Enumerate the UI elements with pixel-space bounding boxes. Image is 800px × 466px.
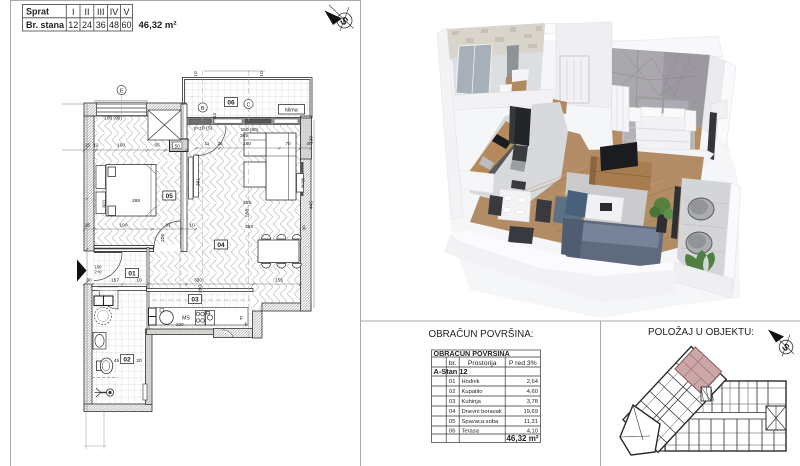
svg-text:155: 155 — [275, 278, 283, 284]
svg-text:40: 40 — [244, 322, 248, 326]
svg-text:II: II — [84, 7, 89, 17]
svg-text:2+0: 2+0 — [95, 270, 103, 275]
svg-text:I: I — [72, 7, 75, 17]
svg-text:E: E — [120, 88, 124, 94]
svg-text:p=±0 (S): p=±0 (S) — [194, 126, 213, 132]
svg-text:06: 06 — [227, 100, 235, 107]
svg-text:25: 25 — [85, 143, 91, 149]
svg-text:Dnevni boravak: Dnevni boravak — [462, 409, 502, 415]
svg-text:2,64: 2,64 — [527, 379, 539, 385]
svg-text:19,69: 19,69 — [523, 409, 538, 415]
svg-text:IV: IV — [110, 7, 119, 17]
svg-text:klima: klima — [285, 108, 298, 114]
svg-text:4,60: 4,60 — [527, 389, 538, 395]
svg-text:01: 01 — [128, 271, 136, 278]
svg-text:45: 45 — [114, 358, 120, 364]
svg-text:25: 25 — [217, 141, 223, 147]
svg-text:355: 355 — [245, 224, 253, 230]
svg-text:10: 10 — [136, 278, 142, 284]
svg-text:C: C — [247, 102, 251, 108]
svg-text:330: 330 — [194, 278, 202, 284]
svg-text:br.: br. — [449, 360, 457, 367]
svg-text:11: 11 — [205, 141, 210, 147]
svg-text:30: 30 — [86, 278, 92, 284]
svg-text:110: 110 — [212, 112, 217, 119]
svg-text:04: 04 — [217, 242, 225, 249]
svg-text:3,78: 3,78 — [527, 399, 538, 405]
svg-text:381: 381 — [196, 178, 202, 186]
svg-text:10: 10 — [193, 71, 199, 77]
svg-text:46,32 m²: 46,32 m² — [506, 434, 538, 443]
svg-text:Br. stana: Br. stana — [26, 20, 65, 30]
svg-text:12: 12 — [93, 143, 99, 149]
svg-text:03: 03 — [449, 399, 455, 405]
svg-text:OBRACUN POVRSINA: OBRACUN POVRSINA — [434, 349, 510, 358]
svg-text:MS: MS — [182, 316, 190, 322]
svg-text:24: 24 — [82, 20, 92, 30]
svg-text:Sprat: Sprat — [26, 7, 49, 17]
svg-text:70: 70 — [285, 141, 291, 147]
svg-text:46,32 m²: 46,32 m² — [139, 20, 177, 31]
svg-text:220: 220 — [176, 322, 184, 327]
svg-text:130: 130 — [309, 136, 315, 144]
svg-text:04: 04 — [449, 409, 456, 415]
svg-text:06: 06 — [449, 428, 455, 434]
svg-text:160: 160 — [243, 141, 251, 147]
svg-text:190: 190 — [119, 223, 127, 229]
svg-text:B: B — [201, 106, 205, 112]
svg-text:100 (90): 100 (90) — [104, 116, 122, 122]
svg-text:150 (90): 150 (90) — [241, 127, 259, 133]
svg-text:Spavaca soba: Spavaca soba — [462, 419, 500, 425]
svg-text:01: 01 — [449, 379, 455, 385]
svg-text:02: 02 — [449, 389, 455, 395]
svg-text:601: 601 — [102, 199, 108, 207]
svg-text:12: 12 — [68, 20, 78, 30]
svg-text:11,31: 11,31 — [524, 419, 538, 425]
svg-text:Kupatilo: Kupatilo — [462, 389, 483, 395]
svg-text:280: 280 — [198, 285, 204, 293]
svg-text:02: 02 — [123, 357, 131, 364]
svg-text:30: 30 — [302, 225, 308, 231]
svg-text:288: 288 — [132, 198, 140, 204]
svg-text:91: 91 — [165, 223, 171, 229]
svg-text:Prostorija: Prostorija — [468, 360, 497, 367]
svg-text:445: 445 — [309, 201, 315, 209]
svg-text:160: 160 — [117, 143, 125, 149]
svg-text:20: 20 — [136, 358, 142, 364]
svg-text:05: 05 — [449, 419, 455, 425]
svg-text:F: F — [240, 316, 243, 322]
svg-text:OBRAČUN POVRŠINA:: OBRAČUN POVRŠINA: — [428, 329, 533, 340]
svg-text:345: 345 — [240, 133, 248, 139]
svg-text:60: 60 — [121, 20, 131, 30]
svg-text:50: 50 — [175, 144, 181, 150]
svg-text:558: 558 — [245, 209, 251, 217]
svg-text:A-Stan 12: A-Stan 12 — [434, 367, 468, 376]
svg-text:25: 25 — [85, 223, 91, 229]
svg-text:48: 48 — [109, 20, 119, 30]
svg-text:III: III — [97, 7, 105, 17]
svg-text:36: 36 — [96, 20, 106, 30]
svg-text:10: 10 — [259, 71, 265, 77]
svg-text:POLOŽAJ U OBJEKTU:: POLOŽAJ U OBJEKTU: — [648, 327, 754, 338]
svg-text:klima: klima — [301, 178, 306, 188]
svg-text:157: 157 — [111, 278, 119, 284]
svg-text:V: V — [123, 7, 129, 17]
svg-text:P red 3%: P red 3% — [509, 360, 537, 367]
svg-text:355: 355 — [243, 200, 251, 206]
svg-text:Kuhinja: Kuhinja — [462, 399, 482, 405]
svg-text:05: 05 — [166, 193, 174, 200]
svg-text:226: 226 — [160, 234, 166, 242]
svg-text:10: 10 — [189, 223, 195, 229]
svg-text:Hodnik: Hodnik — [462, 379, 480, 385]
svg-text:65: 65 — [154, 143, 160, 149]
svg-text:Terasa: Terasa — [462, 428, 480, 434]
svg-text:03: 03 — [191, 297, 199, 304]
